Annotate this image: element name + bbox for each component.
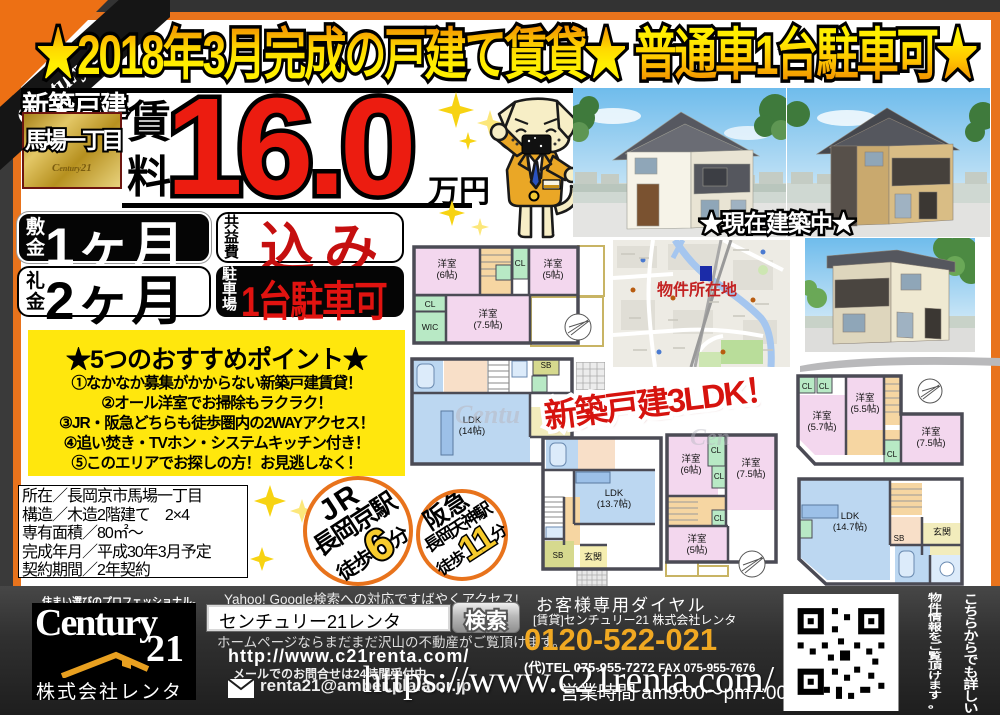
svg-text:(7.5帖): (7.5帖) [473, 319, 502, 331]
svg-text:洋室: 洋室 [437, 258, 456, 270]
svg-text:物件所在地: 物件所在地 [657, 280, 737, 299]
svg-text:洋室: 洋室 [855, 392, 874, 404]
svg-text:洋室: 洋室 [681, 453, 700, 465]
svg-text:(13.7帖): (13.7帖) [597, 498, 631, 510]
svg-text:WIC: WIC [422, 322, 439, 332]
svg-text:CL: CL [714, 514, 725, 523]
svg-text:。: 。 [928, 699, 942, 710]
svg-text:(7.5帖): (7.5帖) [736, 468, 765, 480]
svg-text:LDK: LDK [605, 488, 624, 499]
svg-text:CL: CL [714, 472, 725, 481]
svg-text:(14.7帖): (14.7帖) [833, 521, 867, 533]
svg-text:CL: CL [887, 450, 898, 459]
svg-text:LDK: LDK [841, 511, 860, 522]
svg-text:(5帖): (5帖) [542, 269, 563, 281]
svg-text:洋室: 洋室 [543, 258, 562, 270]
svg-text:SB: SB [541, 361, 552, 370]
svg-text:CL: CL [425, 299, 436, 309]
svg-text:洋室: 洋室 [741, 457, 760, 469]
svg-text:(5帖): (5帖) [686, 544, 707, 556]
svg-text:CL: CL [515, 258, 526, 268]
svg-text:詳: 詳 [964, 677, 979, 691]
svg-text:(6帖): (6帖) [680, 464, 701, 476]
svg-text:(5.7帖): (5.7帖) [807, 421, 836, 433]
svg-text:SB: SB [894, 534, 905, 543]
svg-text:い: い [964, 702, 979, 714]
svg-text:SB: SB [553, 551, 564, 560]
svg-text:玄関: 玄関 [584, 551, 602, 562]
svg-text:CL: CL [802, 382, 813, 391]
svg-text:玄関: 玄関 [933, 526, 951, 537]
svg-text:洋室: 洋室 [478, 308, 497, 320]
svg-text:洋室: 洋室 [687, 533, 706, 545]
svg-text:(5.5帖): (5.5帖) [850, 403, 879, 415]
svg-text:洋室: 洋室 [921, 426, 940, 438]
svg-text:(7.5帖): (7.5帖) [916, 437, 945, 449]
svg-text:洋室: 洋室 [812, 410, 831, 422]
svg-text:(6帖): (6帖) [436, 269, 457, 281]
svg-text:CL: CL [819, 382, 830, 391]
